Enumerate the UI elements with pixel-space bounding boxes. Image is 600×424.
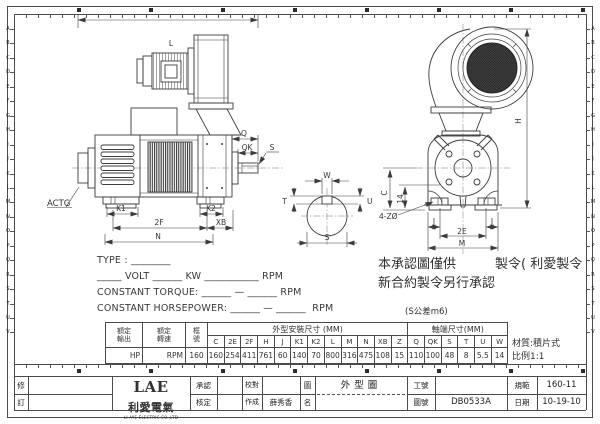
- company-logo: LAE利愛電氣 LI AYE ELECTRIC CO.,LTD: [112, 377, 190, 411]
- ruler-tick-bottom: [158, 364, 159, 368]
- ruler-tick-top: [14, 14, 15, 18]
- dim-label-holes: 4-ZØ: [379, 212, 398, 221]
- ruler-number-mark-bottom: [221, 369, 225, 373]
- ruler-tick-top: [362, 14, 363, 18]
- dim-label-k1: K1: [116, 204, 126, 213]
- tolerance-note: (S公差m6): [405, 305, 448, 317]
- col-header: XB: [374, 336, 391, 348]
- drawing-no-label: 圖號: [407, 394, 435, 411]
- ruler-tick-bottom: [554, 364, 555, 368]
- ruler-tick-bottom: [62, 364, 63, 368]
- ruler-tick-top: [242, 14, 243, 18]
- ruler-tick-bottom: [350, 364, 351, 368]
- ruler-tick-top: [338, 14, 339, 18]
- ruler-tick-left: [10, 101, 14, 102]
- ruler-tick-right: [586, 188, 590, 189]
- dim-value: 70: [308, 348, 325, 364]
- ruler-tick-bottom: [50, 364, 51, 368]
- actg-label: ACTG: [47, 199, 70, 209]
- ruler-tick-top: [434, 14, 435, 18]
- frame-value: 160: [186, 348, 208, 364]
- col-header: J: [274, 336, 291, 348]
- dim-value: 108: [374, 348, 391, 364]
- ruler-tick-top: [314, 14, 315, 18]
- dim-label-s-shaft: S: [270, 143, 275, 152]
- ruler-tick-top: [206, 14, 207, 18]
- check-label: 核定: [190, 394, 217, 411]
- col-header: U: [475, 336, 492, 348]
- ruler-tick-top: [470, 14, 471, 18]
- ruler-tick-bottom: [506, 364, 507, 368]
- ruler-tick-bottom: [86, 364, 87, 368]
- ruler-number-mark-top: [509, 8, 513, 12]
- outline-dims-group-header: 外型安裝尺寸 (MM): [208, 323, 408, 336]
- ruler-tick-bottom: [134, 364, 135, 368]
- dim-value: 60: [274, 348, 291, 364]
- ruler-letter-right: Q: [590, 258, 596, 263]
- ruler-tick-left: [10, 130, 14, 131]
- rated-speed-header: 額定 轉速: [143, 323, 186, 348]
- dim-label-2f: 2F: [154, 218, 163, 227]
- ruler-tick-bottom: [314, 364, 315, 368]
- ruler-letter-right: O: [590, 229, 596, 234]
- ruler-tick-top: [26, 14, 27, 18]
- ruler-tick-bottom: [254, 364, 255, 368]
- ruler-number-mark-top: [293, 8, 297, 12]
- dim-value: 254: [224, 348, 241, 364]
- ruler-tick-top: [278, 14, 279, 18]
- ruler-tick-bottom: [374, 364, 375, 368]
- ruler-tick-bottom: [194, 364, 195, 368]
- ruler-tick-top: [266, 14, 267, 18]
- col-header: S: [441, 336, 458, 348]
- ruler-tick-top: [542, 14, 543, 18]
- ruler-tick-top: [86, 14, 87, 18]
- ruler-tick-top: [566, 14, 567, 18]
- dim-label-t: T: [281, 197, 287, 206]
- ruler-letter-right: J: [590, 157, 596, 162]
- ruler-tick-bottom: [446, 364, 447, 368]
- ruler-number-mark-bottom: [149, 369, 153, 373]
- ruler-letter-right: S: [590, 287, 596, 292]
- ruler-tick-right: [586, 145, 590, 146]
- dim-value: 316: [341, 348, 358, 364]
- ruler-tick-left: [10, 217, 14, 218]
- ruler-tick-bottom: [122, 364, 123, 368]
- ruler-tick-left: [10, 275, 14, 276]
- dim-label-c: C: [380, 190, 389, 195]
- ruler-tick-top: [398, 14, 399, 18]
- ruler-tick-bottom: [518, 364, 519, 368]
- ruler-number-mark-bottom: [365, 369, 369, 373]
- ruler-tick-bottom: [266, 364, 267, 368]
- ruler-tick-top: [482, 14, 483, 18]
- spec-label: 規範: [507, 377, 537, 394]
- ruler-tick-top: [422, 14, 423, 18]
- dim-value: 100: [424, 348, 441, 364]
- ruler-tick-bottom: [278, 364, 279, 368]
- ruler-tick-top: [122, 14, 123, 18]
- ruler-letter-right: T: [590, 302, 596, 307]
- dim-value: 14: [491, 348, 508, 364]
- ruler-tick-top: [110, 14, 111, 18]
- col-header: K2: [308, 336, 325, 348]
- col-header: H: [258, 336, 275, 348]
- ruler-number-mark-top: [437, 8, 441, 12]
- drawing-sheet: L Q QK S ACTG K1 K2 2F XB N: [0, 0, 600, 424]
- ruler-tick-bottom: [206, 364, 207, 368]
- dim-value: 140: [291, 348, 308, 364]
- side-view: [72, 35, 284, 208]
- col-header: M: [341, 336, 358, 348]
- ruler-letter-right: H: [590, 128, 596, 133]
- ruler-tick-right: [586, 202, 590, 203]
- ruler-letter-right: M: [590, 200, 596, 205]
- ruler-tick-bottom: [182, 364, 183, 368]
- ruler-tick-top: [446, 14, 447, 18]
- ruler-tick-right: [586, 116, 590, 117]
- ruler-number-mark-top: [365, 8, 369, 12]
- ruler-tick-bottom: [542, 364, 543, 368]
- ruler-tick-bottom: [230, 364, 231, 368]
- ruler-letter-right: N: [590, 215, 596, 220]
- ruler-number-mark-top: [221, 8, 225, 12]
- ruler-tick-left: [10, 116, 14, 117]
- ruler-letter-right: P: [590, 244, 596, 249]
- ruler-tick-top: [194, 14, 195, 18]
- ruler-letter-right: A: [590, 27, 596, 32]
- col-header: QK: [424, 336, 441, 348]
- ruler-tick-left: [10, 159, 14, 160]
- ruler-tick-right: [586, 130, 590, 131]
- ruler-tick-bottom: [326, 364, 327, 368]
- rated-speed-value: RPM: [143, 348, 186, 364]
- ruler-letter-right: D: [590, 70, 596, 75]
- ruler-letter-right: C: [590, 56, 596, 61]
- work-no-value: [435, 377, 507, 394]
- col-header: Z: [391, 336, 408, 348]
- ruler-tick-bottom: [470, 364, 471, 368]
- ruler-tick-left: [10, 289, 14, 290]
- col-header: 2F: [241, 336, 258, 348]
- col-header: T: [458, 336, 475, 348]
- approval-note-line1: 本承認圖僅供 製令( 利愛製令: [378, 253, 582, 272]
- ruler-tick-right: [586, 260, 590, 261]
- ruler-letter-right: R: [590, 273, 596, 278]
- ruler-tick-top: [506, 14, 507, 18]
- ruler-number-mark-bottom: [293, 369, 297, 373]
- dim-value: 5.5: [475, 348, 492, 364]
- ruler-tick-left: [10, 58, 14, 59]
- spec-line-torque: CONSTANT TORQUE: ______ — ______ RPM: [97, 287, 302, 298]
- spec-line-volt: _____ VOLT ______ KW ___________ RPM: [97, 271, 283, 282]
- ruler-tick-top: [230, 14, 231, 18]
- ruler-tick-left: [10, 29, 14, 30]
- ruler-tick-bottom: [434, 364, 435, 368]
- ruler-tick-right: [586, 29, 590, 30]
- dim-label-l: L: [169, 39, 174, 48]
- ruler-tick-bottom: [26, 364, 27, 368]
- dim-value: 110: [408, 348, 425, 364]
- ruler-letter-right: K: [590, 172, 596, 177]
- ruler-tick-top: [374, 14, 375, 18]
- ruler-tick-top: [386, 14, 387, 18]
- col-header: N: [358, 336, 375, 348]
- shaft-dims-group-header: 軸端尺寸(MM): [408, 323, 508, 336]
- ruler-tick-left: [10, 72, 14, 73]
- col-header: L: [324, 336, 341, 348]
- ruler-tick-left: [10, 260, 14, 261]
- col-header: Q: [408, 336, 425, 348]
- ruler-tick-top: [170, 14, 171, 18]
- ruler-tick-bottom: [290, 364, 291, 368]
- dim-value: 761: [258, 348, 275, 364]
- dim-value: 411: [241, 348, 258, 364]
- ruler-tick-left: [10, 318, 14, 319]
- spec-line-horsepower: CONSTANT HORSEPOWER: ______ — ______ RPM: [97, 303, 333, 314]
- ruler-tick-bottom: [38, 364, 39, 368]
- ruler-letter-right: L: [590, 186, 596, 191]
- dim-label-m: M: [459, 239, 465, 248]
- ruler-tick-bottom: [218, 364, 219, 368]
- dimension-table: 額定 輸出 額定 轉速 框 號 外型安裝尺寸 (MM) 軸端尺寸(MM) C 2…: [105, 322, 508, 364]
- drawing-no-value: DB0533A: [435, 394, 507, 411]
- work-no-label: 工號: [407, 377, 435, 394]
- ruler-tick-top: [62, 14, 63, 18]
- ruler-tick-left: [10, 202, 14, 203]
- frame-header: 框 號: [186, 323, 208, 348]
- ruler-tick-bottom: [98, 364, 99, 368]
- ruler-tick-top: [98, 14, 99, 18]
- dim-label-k2: K2: [206, 204, 216, 213]
- dim-value: 475: [358, 348, 375, 364]
- dim-value: 48: [441, 348, 458, 364]
- dim-label-w: W: [323, 171, 331, 180]
- ruler-tick-left: [10, 231, 14, 232]
- ruler-tick-bottom: [386, 364, 387, 368]
- logo-lae-text: LAE: [133, 380, 168, 395]
- ruler-tick-top: [38, 14, 39, 18]
- scale-note: 比例1:1: [512, 349, 545, 362]
- ruler-tick-top: [74, 14, 75, 18]
- date-label: 日期: [507, 394, 537, 411]
- ruler-tick-bottom: [110, 364, 111, 368]
- dim-label-q: Q: [241, 129, 247, 138]
- ruler-letter-right: G: [590, 114, 596, 119]
- ruler-tick-right: [586, 318, 590, 319]
- dim-label-h: H: [514, 118, 523, 124]
- ruler-tick-right: [586, 231, 590, 232]
- ruler-tick-bottom: [14, 364, 15, 368]
- ruler-tick-top: [518, 14, 519, 18]
- dim-label-s-section: S: [325, 233, 330, 242]
- ruler-number-mark-bottom: [437, 369, 441, 373]
- ruler-tick-right: [586, 174, 590, 175]
- dim-value: 8: [458, 348, 475, 364]
- spec-line-type: TYPE : ________: [97, 255, 171, 266]
- ruler-tick-right: [586, 58, 590, 59]
- ruler-tick-left: [10, 188, 14, 189]
- ruler-tick-bottom: [362, 364, 363, 368]
- ruler-tick-bottom: [242, 364, 243, 368]
- col-header: C: [208, 336, 225, 348]
- ruler-number-mark-top: [581, 8, 585, 12]
- ruler-tick-top: [494, 14, 495, 18]
- logo-company-cn: 利愛電氣: [128, 399, 174, 415]
- dim-label-2e: 2E: [457, 227, 467, 236]
- ruler-tick-top: [182, 14, 183, 18]
- ruler-letter-right: V: [590, 330, 596, 335]
- rated-output-header: 額定 輸出: [106, 323, 143, 348]
- ruler-tick-top: [578, 14, 579, 18]
- ruler-number-mark-top: [149, 8, 153, 12]
- ruler-tick-right: [586, 304, 590, 305]
- dim-label-xb: XB: [216, 218, 226, 227]
- dim-value: 15: [391, 348, 408, 364]
- logo-company-en: LI AYE ELECTRIC CO.,LTD: [112, 415, 190, 420]
- ruler-tick-top: [458, 14, 459, 18]
- ruler-tick-right: [586, 289, 590, 290]
- made-label: 作成: [242, 394, 262, 411]
- ruler-tick-top: [290, 14, 291, 18]
- ruler-tick-left: [10, 246, 14, 247]
- ruler-tick-top: [350, 14, 351, 18]
- material-note: 材質:積片式: [512, 336, 560, 349]
- dim-label-n: N: [155, 232, 161, 241]
- spec-value: 160-11: [537, 377, 586, 394]
- ruler-tick-right: [586, 275, 590, 276]
- dim-label-14: 14: [396, 194, 405, 204]
- ruler-tick-top: [146, 14, 147, 18]
- revision-label-bottom: 訂: [14, 394, 28, 411]
- ruler-tick-left: [10, 87, 14, 88]
- ruler-tick-bottom: [530, 364, 531, 368]
- ruler-letter-right: B: [590, 41, 596, 46]
- rated-output-value: HP: [106, 348, 143, 364]
- ruler-letter-right: U: [590, 316, 596, 321]
- dim-label-j-right: J: [490, 217, 493, 226]
- ruler-tick-bottom: [74, 364, 75, 368]
- ruler-tick-bottom: [410, 364, 411, 368]
- ruler-tick-bottom: [398, 364, 399, 368]
- ruler-tick-bottom: [146, 364, 147, 368]
- drawing-name-value: 外型圖: [315, 377, 407, 394]
- ruler-tick-top: [50, 14, 51, 18]
- title-block: 修 訂 LAE利愛電氣 LI AYE ELECTRIC CO.,LTD 承認 核…: [14, 376, 586, 411]
- dim-label-u: U: [367, 197, 373, 206]
- end-view-labels: H C 14 4-ZØ J J 2E M: [379, 118, 523, 248]
- ruler-tick-right: [586, 43, 590, 44]
- ruler-tick-bottom: [338, 364, 339, 368]
- ruler-tick-bottom: [170, 364, 171, 368]
- ruler-tick-right: [586, 217, 590, 218]
- ruler-tick-top: [554, 14, 555, 18]
- ruler-number-mark-bottom: [509, 369, 513, 373]
- ruler-tick-bottom: [422, 364, 423, 368]
- ruler-tick-right: [586, 332, 590, 333]
- drawing-name-label-top: 圖: [300, 377, 315, 394]
- ruler-tick-bottom: [566, 364, 567, 368]
- col-header: K1: [291, 336, 308, 348]
- col-header: W: [491, 336, 508, 348]
- drawing-name-divider: [317, 394, 405, 395]
- ruler-tick-top: [410, 14, 411, 18]
- date-value: 10-19-10: [537, 394, 586, 411]
- ruler-tick-bottom: [302, 364, 303, 368]
- ruler-tick-top: [302, 14, 303, 18]
- ruler-tick-top: [134, 14, 135, 18]
- ruler-tick-top: [158, 14, 159, 18]
- ruler-tick-right: [586, 101, 590, 102]
- ruler-tick-top: [530, 14, 531, 18]
- ruler-tick-left: [10, 332, 14, 333]
- ruler-number-mark-top: [77, 8, 81, 12]
- dim-label-qk: QK: [242, 143, 254, 152]
- ruler-tick-left: [10, 43, 14, 44]
- approval-note-line2: 新合約製令另行承認: [378, 272, 495, 291]
- ruler-tick-top: [254, 14, 255, 18]
- drawing-name-label-bottom: 名: [300, 394, 315, 411]
- ruler-tick-top: [326, 14, 327, 18]
- ruler-number-mark-bottom: [581, 369, 585, 373]
- ruler-tick-bottom: [482, 364, 483, 368]
- approve-label: 承認: [190, 377, 217, 394]
- ruler-tick-left: [10, 174, 14, 175]
- revision-label-top: 修: [14, 377, 28, 394]
- ruler-number-mark-bottom: [77, 369, 81, 373]
- ruler-tick-top: [218, 14, 219, 18]
- ruler-tick-left: [10, 145, 14, 146]
- ruler-tick-bottom: [494, 364, 495, 368]
- proof-label: 校對: [242, 377, 262, 394]
- dim-value: 800: [324, 348, 341, 364]
- made-value: 薛秀香: [262, 394, 300, 411]
- ruler-tick-bottom: [578, 364, 579, 368]
- ruler-tick-right: [586, 87, 590, 88]
- ruler-tick-left: [10, 304, 14, 305]
- dim-label-j-left: J: [432, 217, 435, 226]
- ruler-tick-right: [586, 159, 590, 160]
- ruler-tick-right: [586, 246, 590, 247]
- ruler-letter-right: I: [590, 143, 596, 148]
- ruler-tick-right: [586, 72, 590, 73]
- dim-value: 160: [208, 348, 225, 364]
- ruler-letter-right: E: [590, 85, 596, 90]
- ruler-tick-bottom: [458, 364, 459, 368]
- ruler-letter-right: F: [590, 99, 596, 104]
- col-header: 2E: [224, 336, 241, 348]
